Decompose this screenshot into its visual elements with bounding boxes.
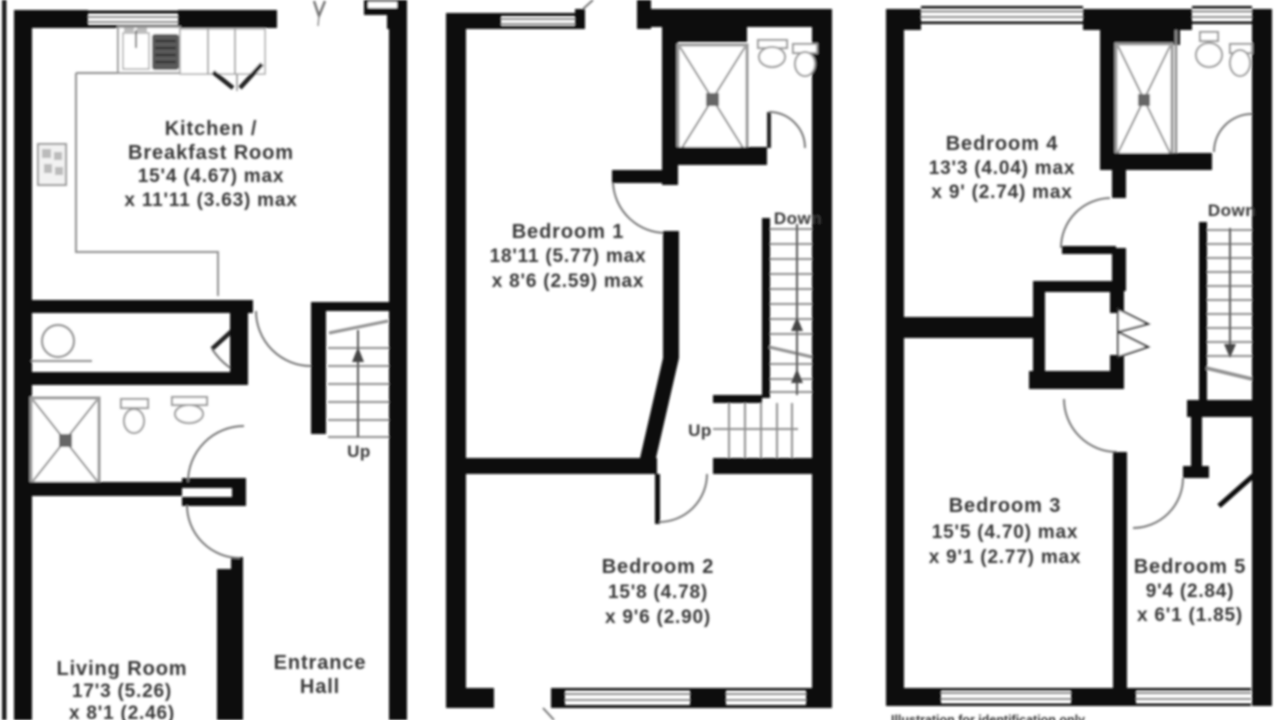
svg-text:13'3 (4.04) max: 13'3 (4.04) max bbox=[929, 158, 1075, 179]
svg-text:15'8 (4.78): 15'8 (4.78) bbox=[608, 582, 708, 603]
svg-text:Bedroom 2: Bedroom 2 bbox=[602, 556, 715, 578]
svg-text:x 9' (2.74) max: x 9' (2.74) max bbox=[931, 182, 1072, 203]
svg-text:x 9'1 (2.77) max: x 9'1 (2.77) max bbox=[929, 547, 1082, 568]
svg-text:x 8'1 (2.46): x 8'1 (2.46) bbox=[69, 703, 175, 720]
svg-text:x 6'1 (1.85): x 6'1 (1.85) bbox=[1137, 605, 1243, 626]
svg-text:Bedroom 1: Bedroom 1 bbox=[512, 221, 625, 243]
svg-text:17'3 (5.26): 17'3 (5.26) bbox=[72, 681, 172, 702]
svg-text:Entrance: Entrance bbox=[274, 652, 367, 674]
svg-text:9'4 (2.84): 9'4 (2.84) bbox=[1146, 581, 1235, 602]
svg-text:Breakfast Room: Breakfast Room bbox=[128, 142, 294, 164]
svg-text:Bedroom 3: Bedroom 3 bbox=[949, 495, 1062, 517]
svg-text:x 9'6 (2.90): x 9'6 (2.90) bbox=[605, 607, 711, 628]
svg-text:Illustration for identificatio: Illustration for identification only bbox=[891, 712, 1086, 720]
svg-text:Bedroom 5: Bedroom 5 bbox=[1134, 556, 1247, 578]
svg-text:Living Room: Living Room bbox=[56, 658, 187, 680]
svg-text:Bedroom 4: Bedroom 4 bbox=[946, 133, 1059, 155]
svg-text:x 11'11 (3.63) max: x 11'11 (3.63) max bbox=[124, 190, 297, 211]
svg-text:Kitchen /: Kitchen / bbox=[165, 118, 258, 140]
svg-text:15'4 (4.67) max: 15'4 (4.67) max bbox=[138, 166, 284, 187]
svg-text:15'5 (4.70) max: 15'5 (4.70) max bbox=[932, 522, 1078, 543]
svg-text:Up: Up bbox=[688, 421, 712, 440]
svg-text:Up: Up bbox=[347, 442, 371, 461]
svg-text:x 8'6 (2.59) max: x 8'6 (2.59) max bbox=[492, 271, 645, 292]
svg-text:Down: Down bbox=[774, 209, 822, 228]
svg-text:Down: Down bbox=[1208, 201, 1256, 220]
svg-text:Hall: Hall bbox=[300, 676, 340, 698]
svg-text:18'11 (5.77) max: 18'11 (5.77) max bbox=[490, 246, 647, 267]
